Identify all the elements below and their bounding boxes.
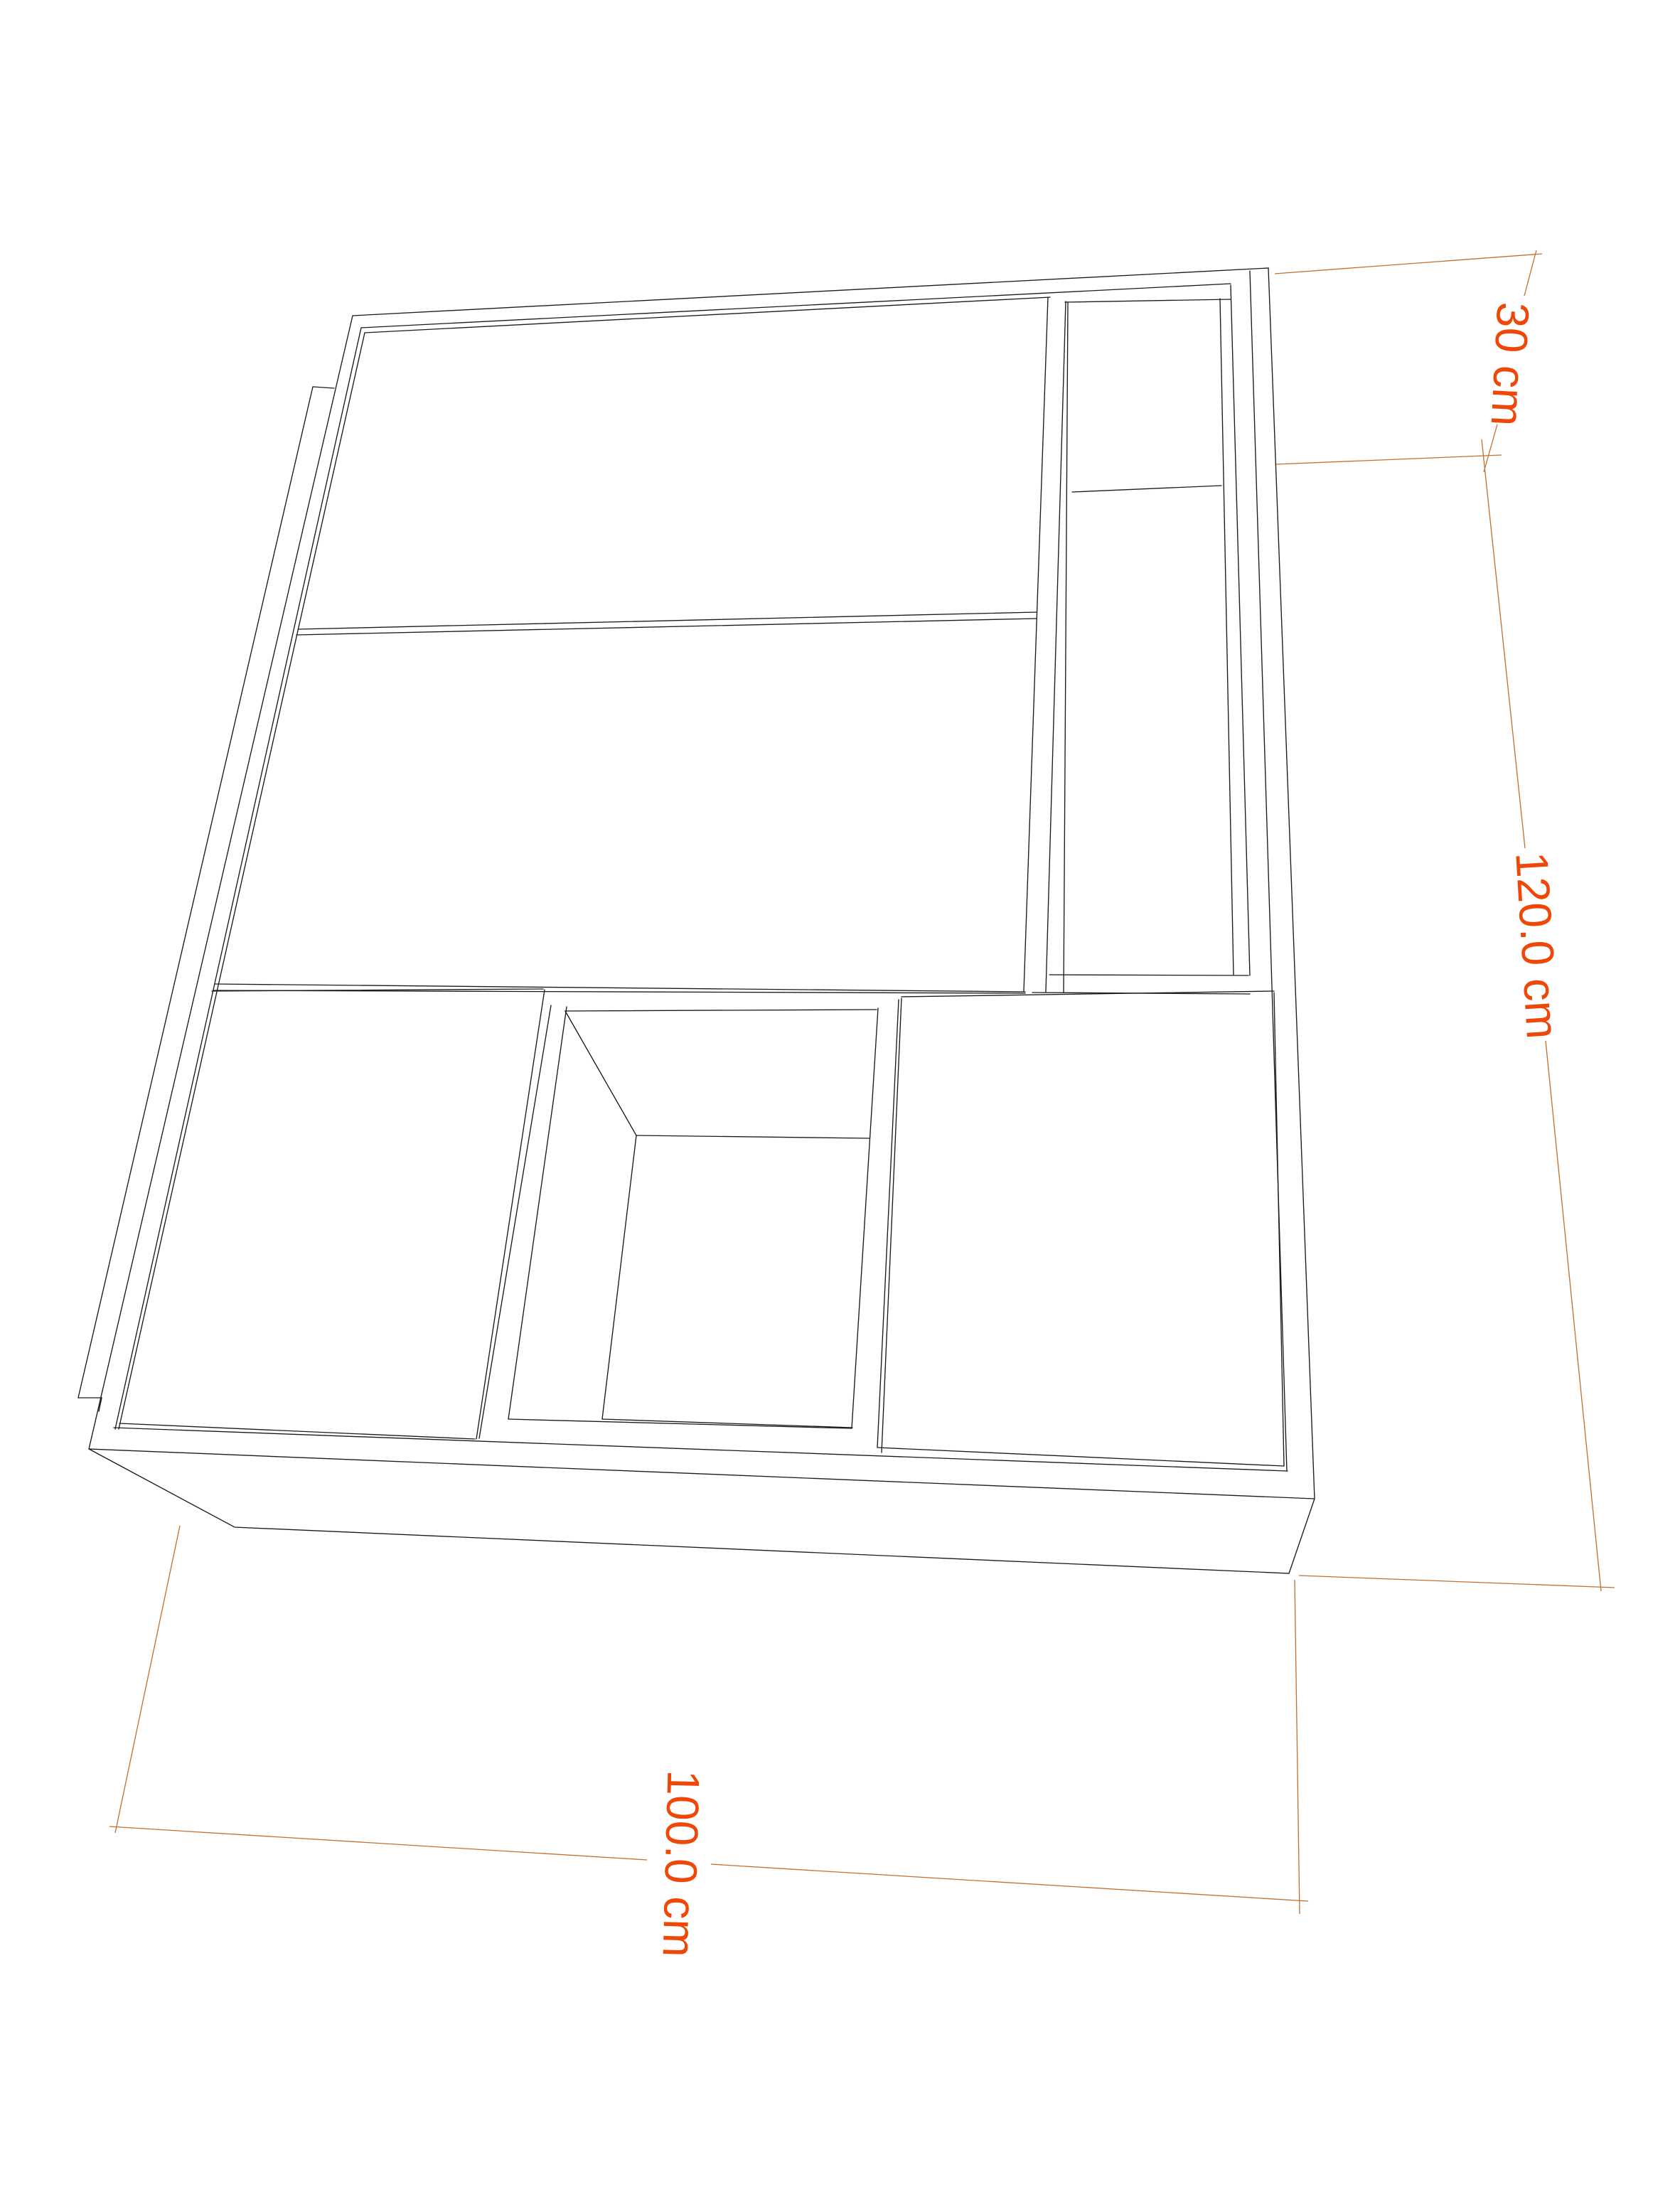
svg-text:30 cm: 30 cm [1482, 301, 1539, 427]
svg-text:100.0 cm: 100.0 cm [653, 1770, 710, 1958]
